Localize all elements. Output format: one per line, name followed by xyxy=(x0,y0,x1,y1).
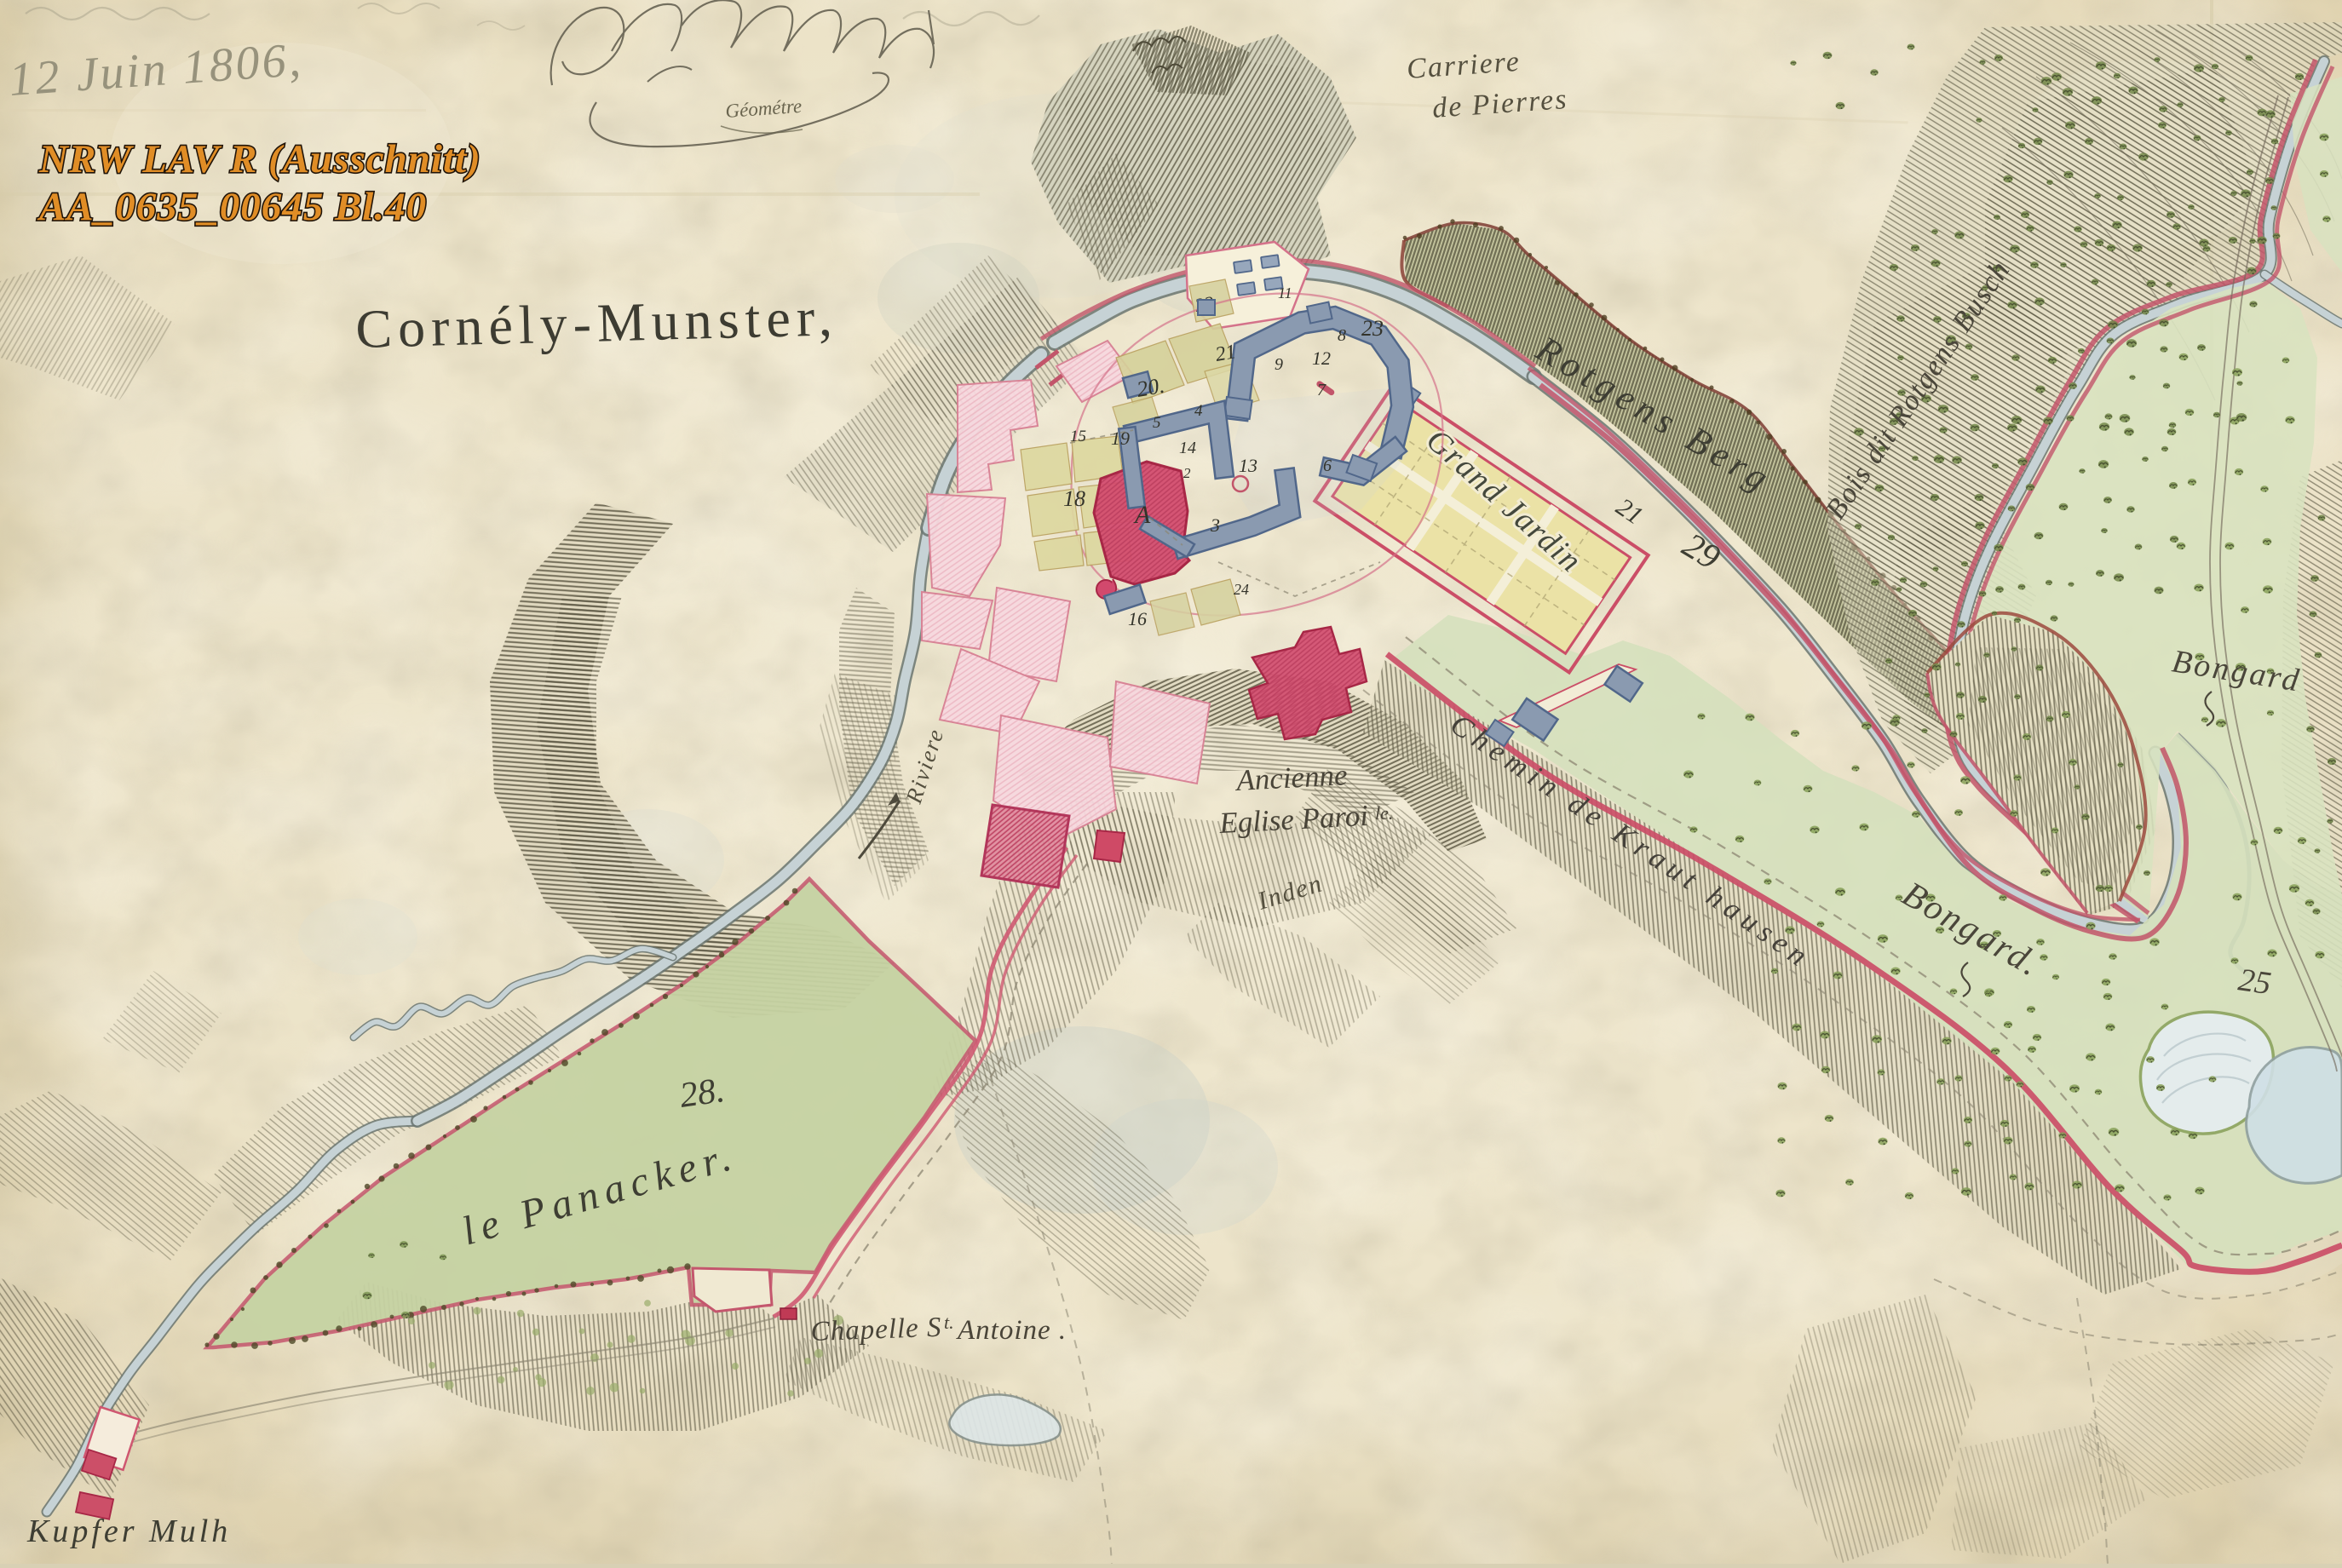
svg-text:16: 16 xyxy=(1128,608,1147,629)
svg-text:23: 23 xyxy=(1361,316,1384,341)
svg-text:21: 21 xyxy=(1214,341,1238,366)
svg-text:24: 24 xyxy=(1234,581,1249,598)
svg-text:25: 25 xyxy=(2236,962,2273,1002)
svg-text:AA_0635_00645 Bl.40: AA_0635_00645 Bl.40 xyxy=(37,185,427,229)
svg-text:NRW LAV R (Ausschnitt): NRW LAV R (Ausschnitt) xyxy=(38,137,481,181)
svg-text:4: 4 xyxy=(1194,402,1203,420)
svg-text:3: 3 xyxy=(1210,514,1220,536)
svg-text:Chapelle S: Chapelle S xyxy=(810,1312,942,1347)
svg-text:A: A xyxy=(1133,501,1151,529)
svg-text:Ancienne: Ancienne xyxy=(1234,758,1348,797)
svg-text:8: 8 xyxy=(1338,326,1346,345)
svg-text:7: 7 xyxy=(1317,381,1326,399)
svg-text:18: 18 xyxy=(1063,486,1085,511)
svg-text:2: 2 xyxy=(1183,465,1191,481)
svg-text:Antoine .: Antoine . xyxy=(956,1315,1067,1346)
svg-text:9: 9 xyxy=(1275,355,1283,374)
svg-text:12: 12 xyxy=(1312,347,1331,369)
svg-text:20.: 20. xyxy=(1135,373,1166,402)
svg-text:19: 19 xyxy=(1111,428,1130,449)
svg-text:5: 5 xyxy=(1153,414,1161,432)
svg-text:15: 15 xyxy=(1070,428,1086,445)
svg-text:le.: le. xyxy=(1375,802,1393,824)
svg-text:t.: t. xyxy=(944,1312,954,1333)
svg-text:13: 13 xyxy=(1239,455,1257,476)
svg-text:11: 11 xyxy=(1278,284,1292,302)
svg-text:14: 14 xyxy=(1179,439,1196,457)
svg-text:Kupfer Mulh: Kupfer Mulh xyxy=(26,1513,231,1549)
svg-text:28.: 28. xyxy=(677,1071,727,1116)
svg-text:6: 6 xyxy=(1323,457,1332,475)
svg-text:Cornély-Munster,: Cornély-Munster, xyxy=(355,286,839,359)
